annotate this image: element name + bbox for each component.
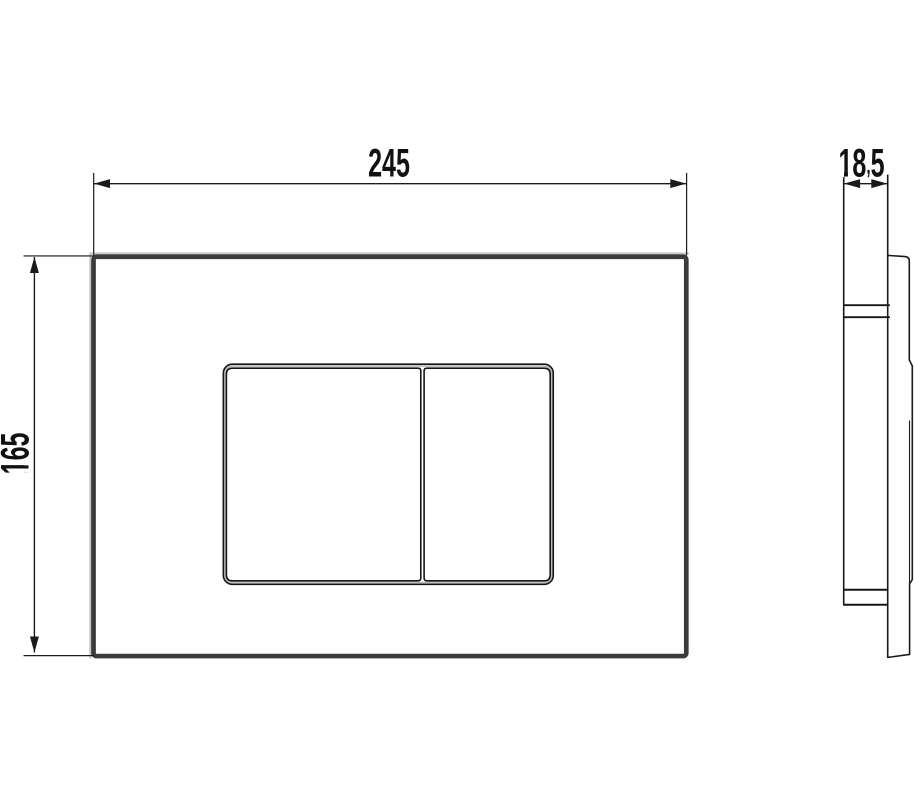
svg-text:165: 165 [0, 433, 38, 475]
svg-text:245: 245 [368, 142, 410, 186]
svg-text:18,5: 18,5 [838, 142, 884, 186]
